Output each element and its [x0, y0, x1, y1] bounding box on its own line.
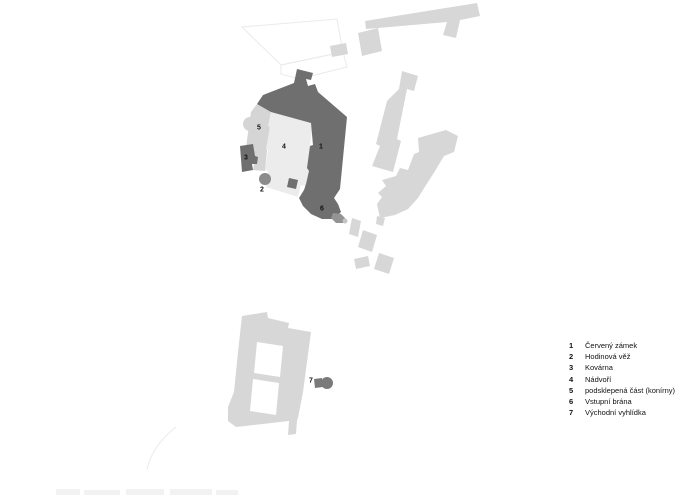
gate-tip-shape	[343, 219, 348, 224]
map-marker-5: 5	[257, 125, 261, 132]
legend-item-number: 6	[569, 397, 585, 406]
legend-item-label: Nádvoří	[585, 375, 611, 384]
map-marker-2: 2	[260, 187, 264, 194]
faint-building	[84, 490, 120, 495]
building-shape	[365, 3, 480, 38]
legend-item-label: Kovárna	[585, 363, 613, 372]
building-shape	[330, 43, 348, 57]
legend-item-number: 1	[569, 341, 585, 350]
map-marker-6: 6	[320, 206, 324, 213]
legend-item-number: 3	[569, 363, 585, 372]
legend-item-label: Vstupní brána	[585, 397, 632, 406]
building-shape	[372, 71, 418, 172]
faint-building	[170, 489, 212, 495]
faint-building	[126, 489, 164, 495]
legend-item-number: 7	[569, 408, 585, 417]
legend-item: 5 podsklepená část (konírny)	[569, 386, 675, 397]
castle-wing-protrusion-shape	[287, 178, 298, 189]
legend-item-label: Hodinová věž	[585, 352, 630, 361]
clock-tower-shape	[259, 173, 271, 185]
legend-item-number: 2	[569, 352, 585, 361]
legend-item: 2 Hodinová věž	[569, 352, 675, 363]
building-shape	[358, 28, 382, 56]
viewpoint-shape	[321, 377, 333, 389]
map-marker-4: 4	[282, 144, 286, 151]
legend-item-number: 4	[569, 375, 585, 384]
legend-item: 3 Kovárna	[569, 363, 675, 374]
legend-item: 6 Vstupní brána	[569, 397, 675, 408]
building-shape	[354, 256, 370, 269]
parcel-outline	[242, 19, 343, 65]
building-shape	[349, 218, 361, 237]
building-shape	[358, 230, 377, 252]
faint-building	[216, 490, 238, 495]
site-plan: 1 2 3 4 5 6 7 1 Červený zámek 2 Hodinová…	[0, 0, 700, 495]
legend-item: 1 Červený zámek	[569, 341, 675, 352]
legend-item-label: Východní vyhlídka	[585, 408, 646, 417]
map-marker-7: 7	[309, 378, 313, 385]
legend-item: 7 Východní vyhlídka	[569, 408, 675, 419]
legend-item: 4 Nádvoří	[569, 375, 675, 386]
legend-item-number: 5	[569, 386, 585, 395]
map-marker-3: 3	[244, 155, 248, 162]
parcel-outline	[281, 52, 347, 79]
site-plan-map	[0, 0, 700, 495]
building-shape	[374, 253, 394, 274]
faint-building	[56, 489, 80, 495]
building-shape	[376, 216, 385, 226]
legend-item-label: podsklepená část (konírny)	[585, 386, 675, 395]
legend-item-label: Červený zámek	[585, 341, 637, 350]
map-marker-1: 1	[319, 144, 323, 151]
building-shape-ring	[228, 312, 311, 435]
legend: 1 Červený zámek 2 Hodinová věž 3 Kovárna…	[569, 341, 675, 419]
path-outline	[147, 427, 176, 469]
